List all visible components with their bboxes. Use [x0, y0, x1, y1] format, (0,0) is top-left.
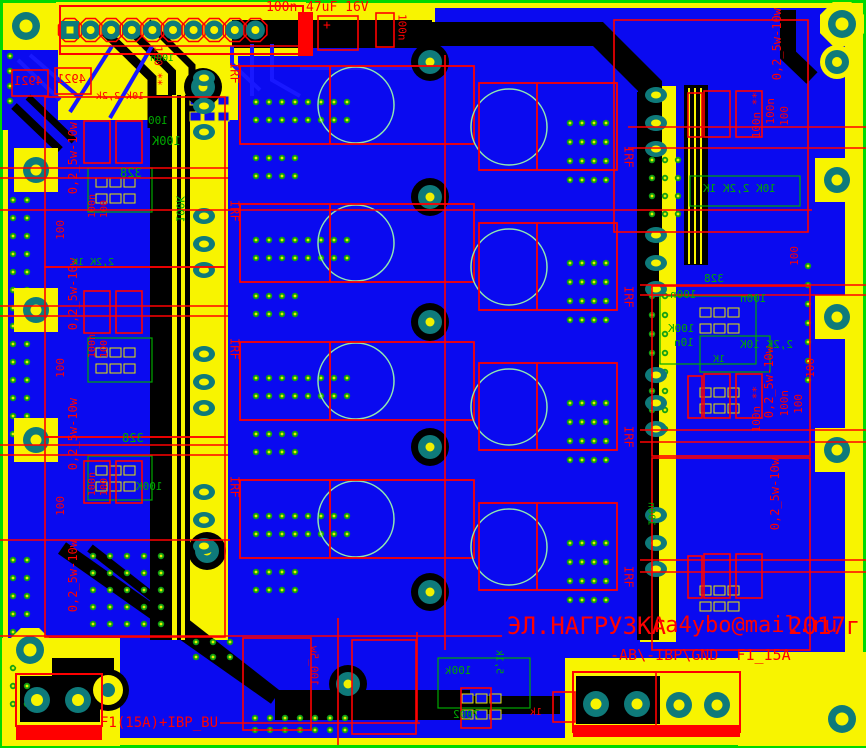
pcb-copper-art: [0, 0, 866, 748]
pcb-board[interactable]: 100n47uF 16V+100n100 **IRFIRFIRFIRFIRFIR…: [0, 0, 866, 748]
